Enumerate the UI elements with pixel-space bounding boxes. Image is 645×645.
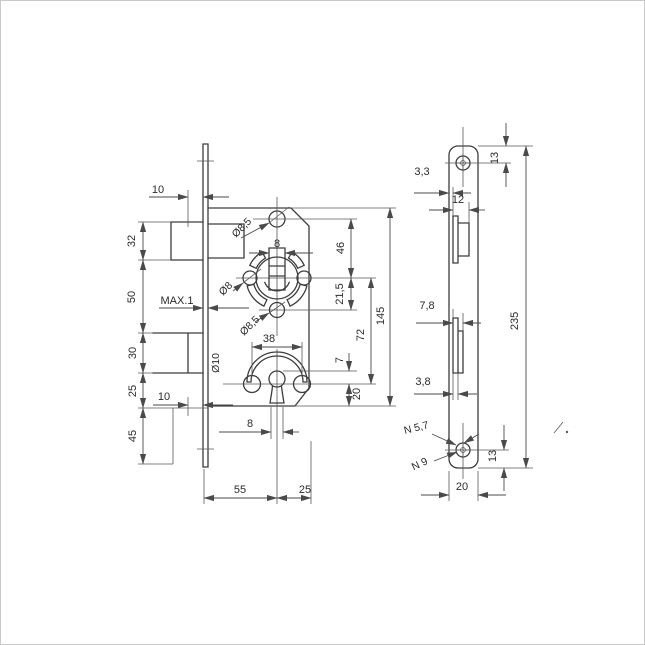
dim-label-25-left: 25: [127, 385, 139, 397]
dim-label-n5-7: N 5,7: [403, 419, 430, 437]
center-lines: [223, 197, 376, 504]
technical-drawing-page: 10 32 50 MAX.1 30 25 10 45 55 25 Ø8,5 8 …: [0, 0, 645, 645]
dim-label-n9: N 9: [410, 455, 430, 473]
dim-label-145: 145: [375, 307, 387, 325]
dim-label-13-top: 13: [489, 152, 501, 164]
top-fixing-hole: [253, 211, 357, 227]
dim-label-20-front: 20: [351, 388, 363, 400]
lock-technical-drawing: 10 32 50 MAX.1 30 25 10 45 55 25 Ø8,5 8 …: [1, 1, 645, 645]
dim-label-235: 235: [509, 312, 521, 330]
dim-label-3-8: 3,8: [415, 376, 430, 388]
dim-label-25-bottom: 25: [299, 484, 311, 496]
stray-mark: [554, 422, 568, 433]
dim-label-3-3: 3,3: [414, 166, 429, 178]
dim-label-12: 12: [452, 194, 464, 206]
front-view-labels: 10 32 50 MAX.1 30 25 10 45 55 25 Ø8,5 8 …: [126, 184, 387, 496]
dim-label-46: 46: [335, 242, 347, 254]
dim-label-8-keyhole: 8: [247, 418, 253, 430]
dim-label-10-top: 10: [152, 184, 164, 196]
dim-label-13-bottom: 13: [487, 450, 499, 462]
dim-label-20-side: 20: [456, 481, 468, 493]
dim-label-dia8: Ø8: [217, 280, 236, 299]
dim-label-30: 30: [127, 347, 139, 359]
dim-label-38: 38: [263, 333, 275, 345]
dim-label-dia85-mid: Ø8,5: [238, 313, 263, 338]
side-view-deadbolt-opening: [453, 318, 463, 373]
dim-label-32: 32: [126, 235, 138, 247]
dim-label-max1: MAX.1: [160, 295, 193, 307]
dim-label-10-bottom: 10: [158, 391, 170, 403]
dim-label-50: 50: [126, 291, 138, 303]
dim-label-7: 7: [334, 357, 346, 363]
dim-label-45: 45: [127, 430, 139, 442]
dim-label-dia10: Ø10: [210, 353, 222, 373]
lower-reference-box: [138, 408, 208, 464]
dead-bolt: [138, 333, 203, 373]
dim-label-21-5: 21,5: [334, 283, 346, 304]
side-view-latch-opening: [453, 216, 469, 263]
side-view-faceplate: [445, 127, 511, 479]
dimension-lines-front: [143, 197, 390, 498]
dim-label-7-8: 7,8: [419, 300, 434, 312]
front-view-case-outline: [208, 208, 309, 406]
dim-label-8-spindle: 8: [274, 238, 280, 250]
front-view-faceplate: [197, 144, 214, 467]
dim-label-dia85-top: Ø8,5: [230, 215, 255, 240]
dim-label-72: 72: [355, 329, 367, 341]
side-view-labels: 13 3,3 12 7,8 3,8 N 5,7 N 9 13 20 235: [403, 152, 521, 493]
dim-label-55: 55: [234, 484, 246, 496]
extension-lines-front: [138, 208, 396, 504]
